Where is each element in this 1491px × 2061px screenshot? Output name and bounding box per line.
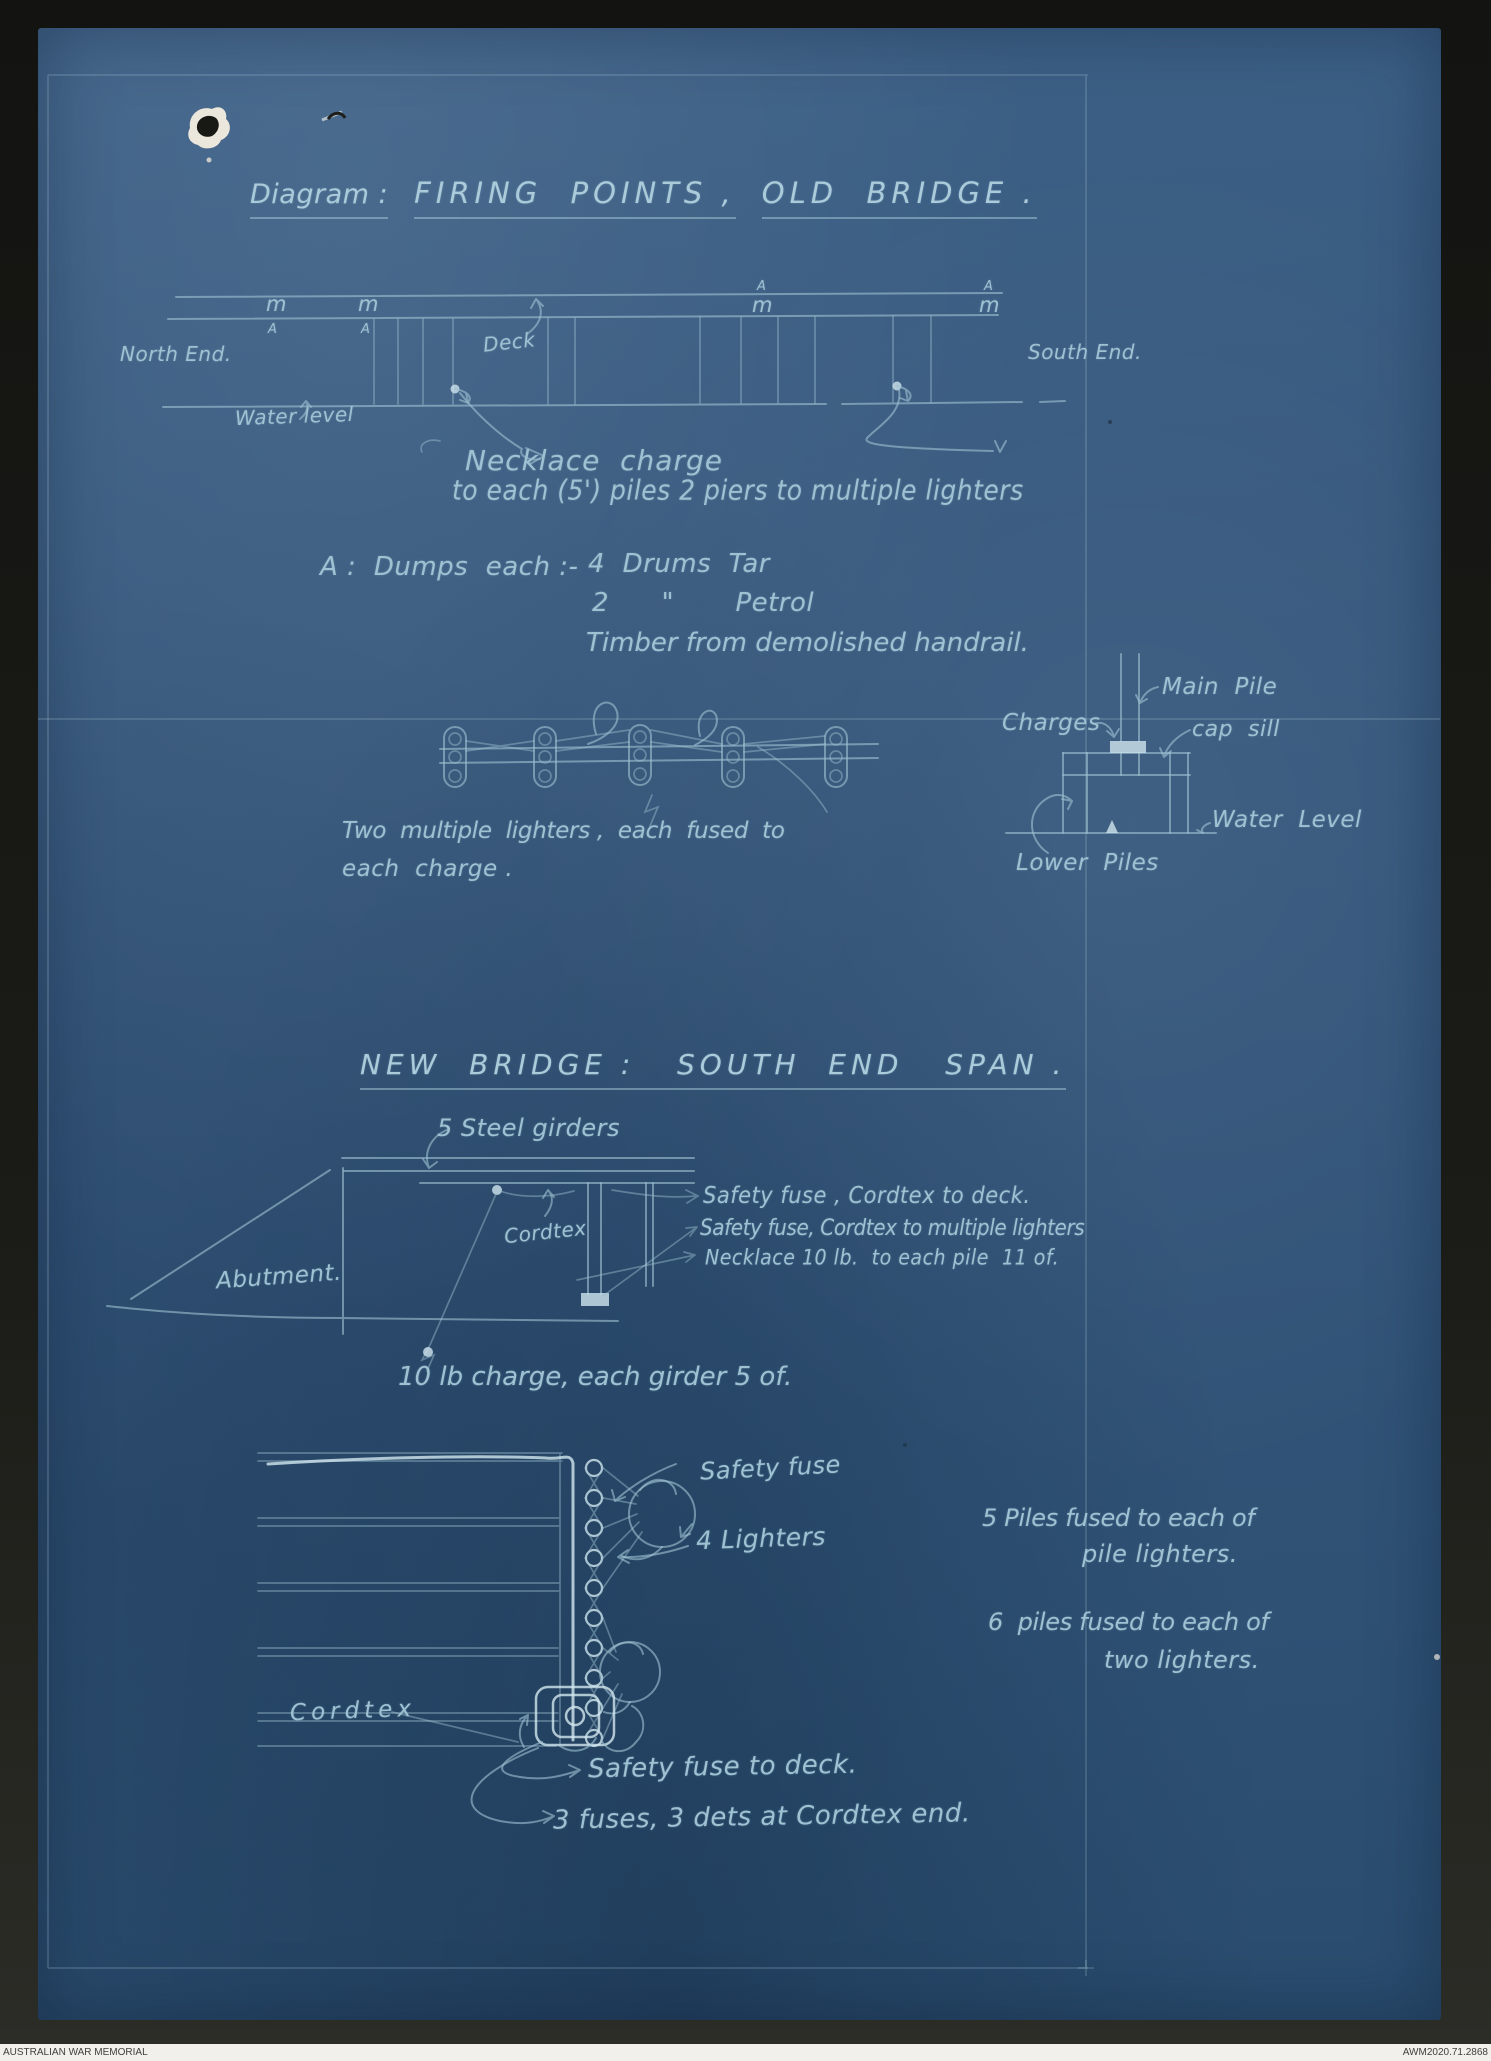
cordtex-plan-label: Cordtex	[290, 1696, 417, 1726]
archive-org-label: AUSTRALIAN WAR MEMORIAL	[3, 2047, 148, 2058]
new-bridge-title: NEW BRIDGE : SOUTH END SPAN .	[360, 1048, 1066, 1090]
multiple-lighters-diagram	[440, 703, 878, 826]
title-diagram-label: Diagram :	[250, 179, 388, 219]
dump-marker-m-2: m	[358, 292, 379, 316]
piles-note1-line1: 5 Piles fused to each of	[982, 1504, 1255, 1532]
necklace-charge-line1: Necklace charge	[465, 444, 723, 477]
safety-fuse-deck-note: Safety fuse , Cordtex to deck.	[703, 1182, 1031, 1208]
charge-girder-note: 10 lb charge, each girder 5 of.	[398, 1362, 792, 1392]
piles-note2-line1: 6 piles fused to each of	[988, 1608, 1269, 1636]
new-bridge-side-view	[107, 1129, 698, 1371]
old-bridge-title: Diagram : FIRING POINTS , OLD BRIDGE .	[250, 176, 1037, 219]
dump-marker-m-1: m	[266, 292, 287, 316]
catalog-footer-bar: AUSTRALIAN WAR MEMORIAL AWM2020.71.2868	[0, 2044, 1491, 2061]
frame-lines	[38, 75, 1440, 1976]
dump-marker-a-2: A	[361, 322, 370, 337]
necklace-charge-line2: to each (5') piles 2 piers to multiple l…	[452, 474, 1024, 506]
lighters-count-label: 4 Lighters	[696, 1522, 827, 1556]
cap-sill-label: cap sill	[1192, 717, 1280, 742]
steel-girders-label: 5 Steel girders	[437, 1114, 620, 1142]
safety-fuse-lighters-note: Safety fuse, Cordtex to multiple lighter…	[700, 1214, 1084, 1240]
lower-piles-label: Lower Piles	[1016, 850, 1159, 876]
water-level-detail-label: Water Level	[1212, 807, 1362, 833]
piles-note2-line2: two lighters.	[1104, 1646, 1260, 1674]
paper-hole	[188, 107, 1440, 1660]
dumps-item-tar: 4 Drums Tar	[588, 549, 770, 579]
necklace-pile-note: Necklace 10 lb. to each pile 11 of.	[705, 1246, 1059, 1270]
dumps-item-petrol: 2 " Petrol	[592, 588, 814, 618]
dump-marker-a-4: A	[984, 279, 993, 294]
catalog-id-label: AWM2020.71.2868	[1403, 2047, 1488, 2058]
south-end-label: South End.	[1028, 340, 1142, 364]
north-end-label: North End.	[120, 342, 232, 366]
lighters-caption-line2: each charge .	[342, 856, 513, 882]
dump-marker-m-4: m	[979, 293, 1000, 317]
piles-note1-line2: pile lighters.	[1082, 1540, 1238, 1568]
dumps-item-timber: Timber from demolished handrail.	[586, 628, 1029, 658]
charges-label: Charges	[1002, 710, 1100, 736]
dump-marker-a-3: A	[757, 279, 766, 294]
scanned-blueprint-page: Diagram : FIRING POINTS , OLD BRIDGE . m…	[0, 0, 1491, 2061]
lighters-caption-line1: Two multiple lighters , each fused to	[342, 818, 785, 844]
dump-marker-m-3: m	[752, 293, 773, 317]
old-bridge-elevation	[163, 293, 1065, 464]
dumps-heading: A : Dumps each :-	[320, 552, 578, 582]
main-pile-label: Main Pile	[1162, 674, 1277, 700]
fuse-to-deck-note: Safety fuse to deck.	[588, 1750, 858, 1785]
dump-marker-a-1: A	[268, 322, 277, 337]
title-firing-points: FIRING POINTS ,	[414, 176, 736, 219]
title-old-bridge: OLD BRIDGE .	[762, 176, 1037, 219]
water-level-label: Water level	[235, 402, 354, 430]
